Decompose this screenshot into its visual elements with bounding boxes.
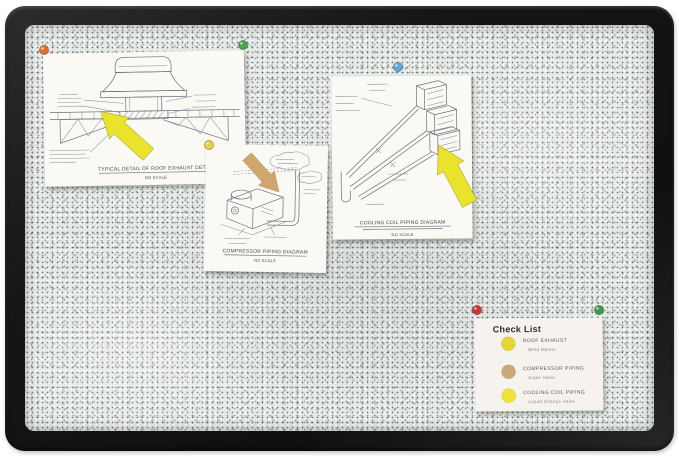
legend-dot-icon: [501, 388, 516, 403]
legend-dot-icon: [501, 364, 516, 379]
pushpin-orange-icon: [38, 43, 50, 55]
pushpin-blue-icon: [392, 60, 404, 72]
checklist-item-sublabel: Wind Master: [528, 347, 557, 352]
drawing-scale-note: NO SCALE: [145, 175, 167, 180]
drawing-title: COMPRESSOR PIPING DIAGRAM: [222, 248, 308, 255]
pushpin-yellow-icon: [203, 138, 215, 150]
checklist-item-sublabel: Angle Valve: [528, 375, 555, 380]
checklist-item-compressor-piping: COMPRESSOR PIPING Angle Valve: [501, 363, 599, 386]
bulletin-board-photo: TYPICAL DETAIL OF ROOF EXHAUST DETAIL NO…: [0, 0, 679, 456]
yellow-arrow-roof-exhaust: [96, 104, 161, 169]
checklist-item-label: COMPRESSOR PIPING: [523, 366, 584, 373]
board-frame: TYPICAL DETAIL OF ROOF EXHAUST DETAIL NO…: [5, 6, 674, 451]
checklist-card: Check List ROOF EXHAUST Wind Master COMP…: [475, 317, 604, 411]
checklist-item-sublabel: Liquid Change Valve: [528, 399, 575, 404]
drawing-scale-note: NO SCALE: [254, 258, 276, 263]
checklist-item-label: ROOF EXHAUST: [523, 338, 567, 344]
arrow-shape: [241, 152, 281, 192]
pushpin-green-2-icon: [593, 303, 605, 315]
legend-dot-icon: [501, 336, 516, 351]
tan-arrow-compressor: [236, 147, 284, 195]
checklist-item-label: COOLING COIL PIPING: [523, 390, 585, 397]
pushpin-red-icon: [471, 303, 483, 315]
arrow-shape: [423, 145, 489, 211]
cork-surface: TYPICAL DETAIL OF ROOF EXHAUST DETAIL NO…: [25, 25, 654, 431]
checklist-title: Check List: [493, 324, 542, 334]
arrow-shape: [100, 109, 154, 163]
drawing-scale-note: NO SCALE: [392, 232, 414, 237]
checklist-item-roof-exhaust: ROOF EXHAUST Wind Master: [501, 335, 599, 358]
checklist-item-cooling-coil-piping: COOLING COIL PIPING Liquid Change Valve: [501, 387, 599, 410]
pushpin-green-icon: [237, 38, 249, 50]
drawing-title: COOLING COIL PIPING DIAGRAM: [360, 220, 446, 227]
